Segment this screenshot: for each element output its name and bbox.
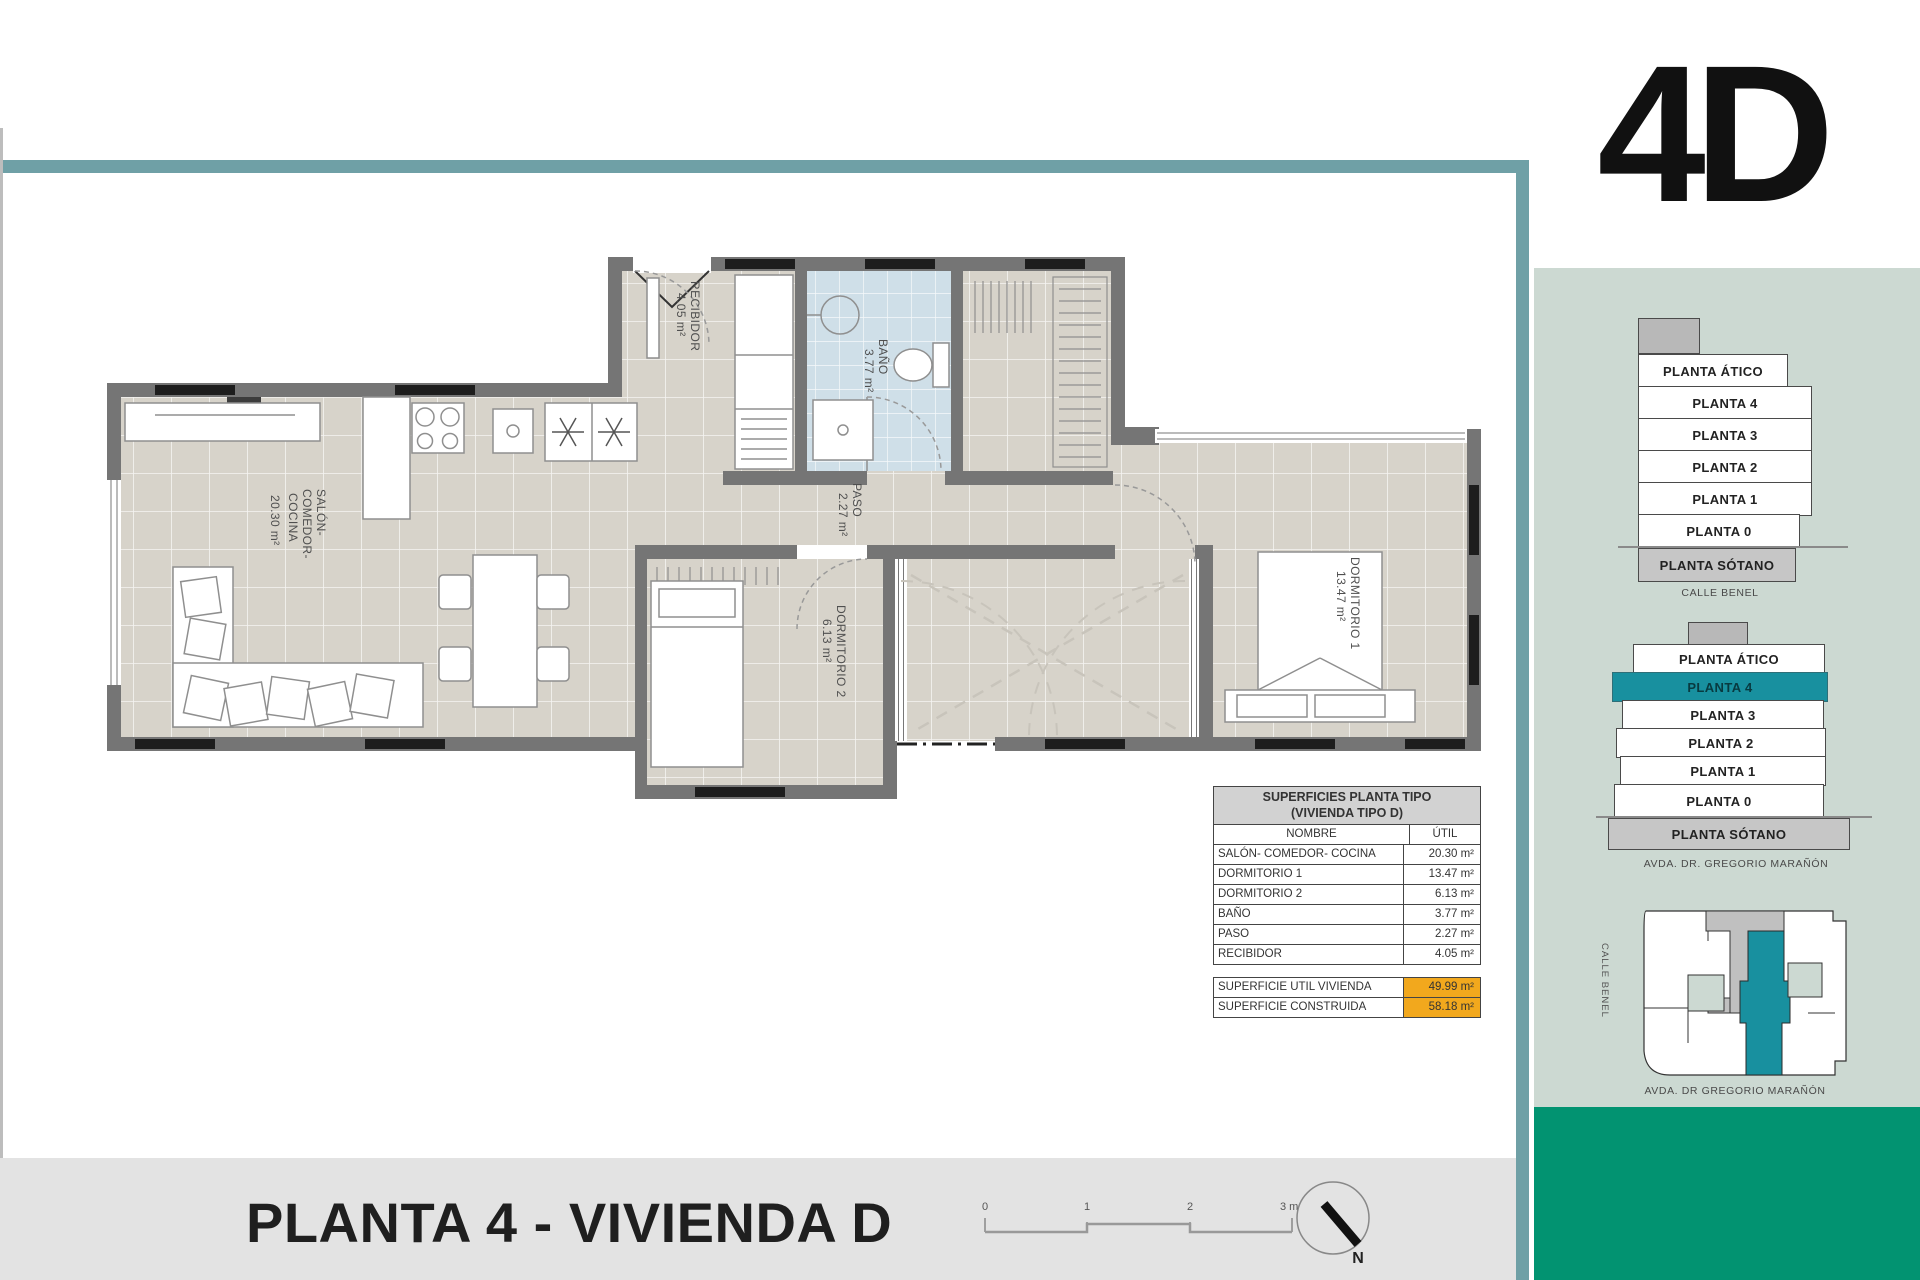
site-patio	[1788, 963, 1822, 997]
col-util: ÚTIL	[1410, 825, 1480, 844]
label-paso-area: 2.27 m²	[836, 493, 850, 536]
site-plan: CALLE BENEL	[1588, 893, 1883, 1093]
top-accent-band	[0, 160, 1528, 173]
floor-3: PLANTA 3	[1622, 700, 1824, 730]
floor-1: PLANTA 1	[1638, 482, 1812, 516]
floor-0: PLANTA 0	[1638, 514, 1800, 548]
entrance-opening	[633, 255, 711, 273]
total-util-value: 49.99 m²	[1404, 978, 1480, 997]
floor-atico: PLANTA ÁTICO	[1638, 354, 1788, 388]
site-street-bottom: AVDA. DR GREGORIO MARAÑÓN	[1590, 1085, 1880, 1097]
total-row: SUPERFICIE CONSTRUIDA 58.18 m²	[1213, 998, 1481, 1018]
label-recibidor: RECIBIDOR	[688, 281, 702, 351]
stack-front-view: PLANTA ÁTICO PLANTA 4 PLANTA 3 PLANTA 2 …	[1596, 618, 1876, 883]
floor-0: PLANTA 0	[1614, 784, 1824, 818]
street-caption: CALLE BENEL	[1630, 587, 1810, 599]
floor-sotano: PLANTA SÓTANO	[1608, 818, 1850, 850]
site-street-left: CALLE BENEL	[1599, 943, 1610, 1018]
right-accent-band	[1516, 160, 1529, 1280]
floor-1: PLANTA 1	[1620, 756, 1826, 786]
floor-4-highlighted: PLANTA 4	[1612, 672, 1828, 702]
table-row: SALÓN- COMEDOR- COCINA 20.30 m²	[1213, 845, 1481, 865]
page-title: PLANTA 4 - VIVIENDA D	[246, 1190, 892, 1255]
table-row: RECIBIDOR 4.05 m²	[1213, 945, 1481, 965]
label-dormitorio2-area: 6.13 m²	[820, 619, 834, 662]
areas-table-header: NOMBRE ÚTIL	[1213, 825, 1481, 845]
areas-table-title-line2: (VIVIENDA TIPO D)	[1214, 806, 1480, 822]
stack-side-view: PLANTA ÁTICO PLANTA 4 PLANTA 3 PLANTA 2 …	[1600, 315, 1860, 610]
label-salon: SALÓN-	[314, 489, 329, 536]
label-bano: BAÑO	[876, 339, 890, 375]
scale-tick-1: 1	[1084, 1201, 1090, 1213]
table-row: DORMITORIO 1 13.47 m²	[1213, 865, 1481, 885]
floor-4: PLANTA 4	[1638, 386, 1812, 420]
floor-2: PLANTA 2	[1616, 728, 1826, 758]
label-dormitorio1-area: 13.47 m²	[1334, 571, 1348, 622]
label-paso: PASO	[850, 483, 864, 517]
table-row: BAÑO 3.77 m²	[1213, 905, 1481, 925]
sheet-left-edge	[0, 128, 3, 1158]
compass: N	[1288, 1170, 1383, 1270]
table-row: DORMITORIO 2 6.13 m²	[1213, 885, 1481, 905]
scale-steps	[985, 1224, 1292, 1232]
total-built-value: 58.18 m²	[1404, 998, 1480, 1017]
label-bano-area: 3.77 m²	[862, 349, 876, 392]
label-dormitorio1: DORMITORIO 1	[1348, 557, 1362, 650]
areas-table-totals: SUPERFICIE UTIL VIVIENDA 49.99 m² SUPERF…	[1213, 977, 1481, 1018]
label-recibidor-area: 4.05 m²	[674, 293, 688, 336]
col-nombre: NOMBRE	[1214, 825, 1410, 844]
floor-3: PLANTA 3	[1638, 418, 1812, 452]
floor-2: PLANTA 2	[1638, 450, 1812, 484]
label-salon-area: 20.30 m²	[268, 495, 282, 546]
table-row: PASO 2.27 m²	[1213, 925, 1481, 945]
roof-box	[1688, 622, 1748, 646]
label-dormitorio2: DORMITORIO 2	[834, 605, 848, 698]
unit-code: 4D	[1545, 42, 1875, 227]
areas-table: SUPERFICIES PLANTA TIPO (VIVIENDA TIPO D…	[1213, 786, 1481, 1018]
sidebar-footer-block	[1534, 1107, 1920, 1280]
floor-sotano: PLANTA SÓTANO	[1638, 548, 1796, 582]
label-salon: COMEDOR-	[300, 489, 314, 559]
scale-tick-0: 0	[982, 1201, 988, 1213]
site-unit-d-highlight	[1740, 931, 1790, 1075]
plan-sheet: 4D PLANTA 4 - VIVIENDA D	[0, 0, 1920, 1280]
label-salon: COCINA	[286, 493, 300, 542]
compass-north-label: N	[1352, 1250, 1364, 1267]
roof-box	[1638, 318, 1700, 354]
street-caption: AVDA. DR. GREGORIO MARAÑÓN	[1606, 858, 1866, 870]
areas-table-title-line1: SUPERFICIES PLANTA TIPO	[1214, 790, 1480, 806]
scale-tick-2: 2	[1187, 1201, 1193, 1213]
compass-needle	[1324, 1204, 1358, 1244]
floor-atico: PLANTA ÁTICO	[1633, 644, 1825, 674]
site-patio	[1688, 975, 1724, 1011]
areas-table-title: SUPERFICIES PLANTA TIPO (VIVIENDA TIPO D…	[1213, 786, 1481, 825]
scale-bar: 0 1 2 3 m	[975, 1192, 1325, 1247]
floor-plan: SALÓN- COMEDOR- COCINA 20.30 m² RECIBIDO…	[95, 245, 1515, 805]
total-row: SUPERFICIE UTIL VIVIENDA 49.99 m²	[1213, 977, 1481, 998]
